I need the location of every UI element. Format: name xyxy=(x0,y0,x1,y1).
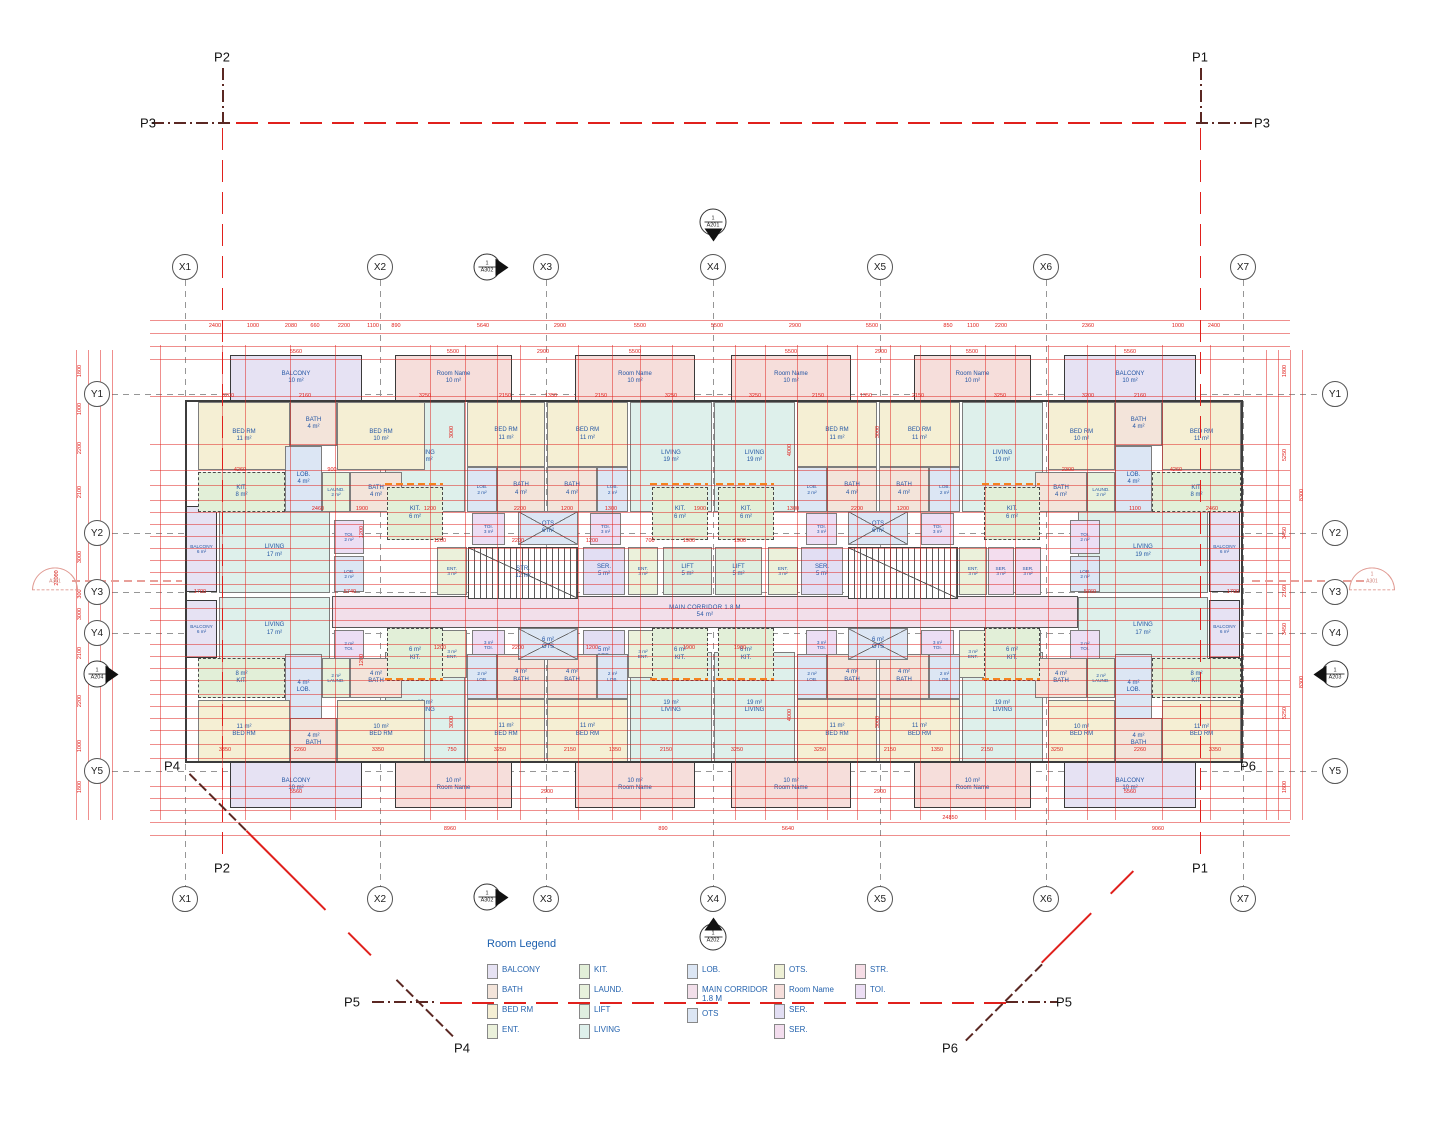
dim-line xyxy=(152,122,234,124)
dim-label: 2160 xyxy=(1282,585,1288,597)
room-label: 4 m² xyxy=(308,424,320,432)
dim-label: 2460 xyxy=(312,506,324,512)
dim-label: 1200 xyxy=(434,538,446,544)
legend-swatch xyxy=(774,964,785,979)
dim-label: 5640 xyxy=(782,826,794,832)
room-label: 11 m² xyxy=(237,436,252,444)
dim-line xyxy=(150,744,1290,745)
dim-label: 2150 xyxy=(884,747,896,753)
dim-label: 2200 xyxy=(77,695,83,707)
dim-label: 1300 xyxy=(787,506,799,512)
dim-label: 2200 xyxy=(77,442,83,454)
dim-line xyxy=(465,345,466,820)
dim-line xyxy=(920,345,921,820)
room-label: BALCONY xyxy=(282,778,311,786)
dim-label: 2400 xyxy=(209,323,221,329)
room-label: 4 m² xyxy=(515,669,527,677)
dim-label: 890 xyxy=(658,826,667,832)
legend-label: LIVING xyxy=(594,1024,620,1034)
dim-label: 2200 xyxy=(512,538,524,544)
room-label: 6 m² xyxy=(542,637,554,645)
legend-item: SER. xyxy=(774,1004,834,1019)
dim-label: 1200 xyxy=(897,506,909,512)
room-balcony: BALCONY10 m² xyxy=(230,762,362,808)
marker-label: 1 xyxy=(1326,668,1344,675)
legend-label: LIFT xyxy=(594,1004,610,1014)
room-label: LIVING xyxy=(265,622,285,630)
dim-line xyxy=(578,345,579,820)
dim-line xyxy=(950,345,951,820)
dim-line xyxy=(672,345,673,820)
room-4-m: 4 m²BATH xyxy=(1035,658,1087,698)
dim-label: 1200 xyxy=(586,645,598,651)
legend-swatch xyxy=(487,964,498,979)
room-label: 6 m² xyxy=(1220,629,1229,634)
dim-label: 1800 xyxy=(1282,365,1288,377)
legend-swatch xyxy=(774,1024,785,1039)
marker-label: A204 xyxy=(88,675,106,681)
dim-label: 4260 xyxy=(1170,467,1182,473)
room-str: STR.12 m² xyxy=(468,547,578,599)
dim-line xyxy=(150,500,1290,501)
legend-swatch xyxy=(687,984,698,999)
room-4-m: 4 m²BATH xyxy=(547,654,597,699)
room-label: BED RM xyxy=(576,427,599,435)
dim-line xyxy=(150,718,1290,719)
room-label: 4 m² xyxy=(1133,424,1145,432)
legend-item: LOB. xyxy=(687,964,768,979)
marker-label: A302 xyxy=(478,268,496,274)
room-label: 4 m² xyxy=(566,669,578,677)
room-label: 17 m² xyxy=(267,630,282,638)
dim-label: 3350 xyxy=(219,747,231,753)
section-arrow-icon xyxy=(704,918,722,931)
legend-item: LAUND. xyxy=(579,984,623,999)
dim-label: 3000 xyxy=(875,426,881,438)
p-marker-p5: P5 xyxy=(344,995,360,1010)
room-bath: BATH4 m² xyxy=(1035,472,1087,512)
p-marker-p4: P4 xyxy=(164,759,180,774)
dim-line xyxy=(150,706,1290,707)
dim-label: 2150 xyxy=(912,393,924,399)
room-room-name: Room Name10 m² xyxy=(914,355,1031,401)
dim-line xyxy=(150,333,1290,334)
section-marker-a203: 1A203 xyxy=(1322,661,1349,688)
dim-label: 1100 xyxy=(967,323,979,329)
legend-label: OTS xyxy=(702,1008,718,1018)
grid-line xyxy=(380,280,381,898)
grid-line xyxy=(1243,280,1244,898)
dim-label: 1900 xyxy=(734,645,746,651)
legend-item: LIVING xyxy=(579,1024,623,1039)
room-label: 2 m² xyxy=(344,574,353,579)
dim-label: 1000 xyxy=(77,740,83,752)
marker-label: A302 xyxy=(478,898,496,904)
grid-bubble-x4: X4 xyxy=(700,254,726,280)
room-4-m: 4 m²BATH xyxy=(1115,718,1162,762)
room-label: 4 m² xyxy=(898,490,910,498)
room-lob: LOB.2 m² xyxy=(334,556,364,592)
dim-line xyxy=(160,345,161,820)
dim-label: 5250 xyxy=(1282,449,1288,461)
legend-swatch xyxy=(487,984,498,999)
dim-label: 2300 xyxy=(1062,467,1074,473)
dim-label: 700 xyxy=(645,538,654,544)
dim-label: 8960 xyxy=(444,826,456,832)
room-room-name: Room Name10 m² xyxy=(395,355,512,401)
room-label: LIVING xyxy=(661,450,681,458)
dim-label: 3250 xyxy=(1051,747,1063,753)
room-8-m: 8 m²KIT. xyxy=(198,658,285,698)
dim-label: 1800 xyxy=(77,781,83,793)
marker-label: 1 xyxy=(88,668,106,675)
room-label: OTS xyxy=(872,644,884,652)
grid-bubble-x7: X7 xyxy=(1230,886,1256,912)
p-marker-p4: P4 xyxy=(454,1041,470,1056)
dim-line xyxy=(246,830,327,911)
legend-label: ENT. xyxy=(502,1024,519,1034)
section-marker-a201: 1A201 xyxy=(700,209,727,236)
room-label: LIVING xyxy=(1133,622,1153,630)
room-label: 6 m² xyxy=(674,514,686,522)
dim-line xyxy=(716,483,774,485)
dim-line xyxy=(1115,345,1116,820)
room-label: 6 m² xyxy=(872,637,884,645)
floor-plan: MAIN CORRIDOR 1.8 M54 m²LIVING19 m²LIVIN… xyxy=(0,0,1433,1128)
legend-item: SER. xyxy=(774,1024,834,1039)
dim-line xyxy=(650,483,708,485)
grid-bubble-x1: X1 xyxy=(172,254,198,280)
dim-line xyxy=(150,524,1290,525)
room-8-m: 8 m²KIT. xyxy=(1152,658,1241,698)
room-label: LIFT xyxy=(681,564,693,572)
dim-line xyxy=(1196,122,1256,124)
room-label: 6 m² xyxy=(740,514,752,522)
legend-label: LOB. xyxy=(702,964,720,974)
room-kit: KIT.6 m² xyxy=(387,487,443,540)
dim-line xyxy=(222,68,224,126)
room-ent: ENT.3 m² xyxy=(628,547,658,595)
dim-label: 2200 xyxy=(514,506,526,512)
room-bath: BATH4 m² xyxy=(1115,402,1162,446)
room-label: 3 m² xyxy=(484,529,493,534)
dim-label: 1300 xyxy=(605,506,617,512)
dim-label: 3000 xyxy=(77,551,83,563)
dim-label: 1900 xyxy=(683,538,695,544)
dim-label: 3350 xyxy=(372,747,384,753)
dim-label: 1000 xyxy=(77,403,83,415)
grid-bubble-x3: X3 xyxy=(533,254,559,280)
dim-line xyxy=(1006,1001,1058,1003)
room-label: 2 m² xyxy=(807,490,816,495)
dim-line xyxy=(1266,350,1267,820)
room-label: LIVING xyxy=(993,707,1013,715)
legend-column: OTS.Room NameSER.SER. xyxy=(774,964,834,1044)
legend-label: Room Name xyxy=(789,984,834,994)
dim-label: 1200 xyxy=(586,538,598,544)
dim-line xyxy=(150,608,1290,609)
dim-line xyxy=(150,536,1290,537)
room-label: BATH xyxy=(306,417,322,425)
room-kit: KIT.8 m² xyxy=(1152,472,1241,512)
room-10-m: 10 m²Room Name xyxy=(395,762,512,808)
legend-label: LAUND. xyxy=(594,984,623,994)
room-10-m: 10 m²Room Name xyxy=(575,762,695,808)
legend-swatch xyxy=(855,964,866,979)
p-marker-p3: P3 xyxy=(140,116,156,131)
legend-swatch xyxy=(855,984,866,999)
grid-bubble-y3: Y3 xyxy=(1322,579,1348,605)
dim-label: 2900 xyxy=(789,323,801,329)
dim-line xyxy=(150,584,1290,585)
dim-label: 2200 xyxy=(338,323,350,329)
room-label: 6 m² xyxy=(409,647,421,655)
dim-line xyxy=(150,730,1290,731)
legend-label: BED RM xyxy=(502,1004,533,1014)
room-label: 6 m² xyxy=(1006,647,1018,655)
room-label: BALCONY xyxy=(1116,371,1145,379)
legend-label: BATH xyxy=(502,984,523,994)
dim-label: 1900 xyxy=(734,538,746,544)
dim-label: 5500 xyxy=(629,349,641,355)
room-label: TOI. xyxy=(484,645,493,650)
dim-line xyxy=(716,678,774,680)
room-4-m: 4 m²LOB. xyxy=(1115,654,1152,720)
room-label: BED RM xyxy=(369,731,392,739)
dim-line xyxy=(112,350,113,820)
room-laund: LAUND.2 m² xyxy=(322,472,350,512)
dim-label: 3250 xyxy=(749,393,761,399)
elevation-marker-a301: 1A301 xyxy=(1349,567,1395,590)
room-ent: ENT.3 m² xyxy=(437,547,467,595)
room-label: 2 m² xyxy=(940,490,949,495)
dim-label: 1200 xyxy=(359,526,365,538)
legend-item: MAIN CORRIDOR1.8 M xyxy=(687,984,768,1003)
dim-line xyxy=(348,932,372,956)
room-label: 6 m² xyxy=(872,528,884,536)
dim-label: 3200 xyxy=(1082,393,1094,399)
grid-bubble-y2: Y2 xyxy=(1322,520,1348,546)
room-label: 4 m² xyxy=(1133,733,1145,741)
dim-label: 1200 xyxy=(359,654,365,666)
dim-label: 5560 xyxy=(1124,789,1136,795)
section-arrow-icon xyxy=(496,888,509,906)
dim-label: 5560 xyxy=(1124,349,1136,355)
dim-label: 2900 xyxy=(537,349,549,355)
room-ser: SER.3 m² xyxy=(988,547,1014,595)
section-marker-a204: 1A204 xyxy=(84,661,111,688)
dim-label: 1350 xyxy=(609,747,621,753)
room-lift: LIFT5 m² xyxy=(715,547,762,595)
dim-label: 750 xyxy=(447,747,456,753)
dim-line xyxy=(1087,345,1088,820)
legend-swatch xyxy=(687,1008,698,1023)
room-lift: LIFT5 m² xyxy=(663,547,712,595)
dim-label: 300 xyxy=(77,589,83,598)
dim-line xyxy=(1048,345,1049,820)
legend-title: Room Legend xyxy=(487,938,917,950)
dim-line xyxy=(797,345,798,820)
room-lob: LOB.2 m² xyxy=(1070,556,1100,592)
room-2-m: 2 m²LAUND. xyxy=(1087,658,1115,698)
dim-label: 1350 xyxy=(545,393,557,399)
room-kit: KIT.8 m² xyxy=(198,472,285,512)
dim-label: 8300 xyxy=(1299,676,1305,688)
dim-line xyxy=(290,345,291,820)
room-bed-rm: BED RM10 m² xyxy=(1048,402,1115,470)
room-living: LIVING17 m² xyxy=(219,597,330,662)
room-label: 10 m² xyxy=(1122,378,1137,386)
dim-line xyxy=(765,345,766,820)
room-label: BED RM xyxy=(232,731,255,739)
room-laund: LAUND.2 m² xyxy=(1087,472,1115,512)
legend-item: TOI. xyxy=(855,984,888,999)
grid-bubble-y4: Y4 xyxy=(1322,620,1348,646)
dim-label: 4000 xyxy=(787,709,793,721)
room-label: BED RM xyxy=(825,427,848,435)
dim-line xyxy=(150,798,1290,799)
dim-label: 5500 xyxy=(447,349,459,355)
dim-line xyxy=(150,680,1290,681)
dim-line xyxy=(150,359,1290,360)
dim-label: 2900 xyxy=(541,789,553,795)
room-balcony: BALCONY6 m² xyxy=(1209,506,1240,592)
room-label: 6 m² xyxy=(409,514,421,522)
legend-swatch xyxy=(579,1004,590,1019)
dim-line xyxy=(150,512,1290,513)
room-lob: LOB.2 m² xyxy=(929,467,960,512)
dim-label: 2260 xyxy=(294,747,306,753)
dim-label: 1200 xyxy=(434,645,446,651)
dim-label: 2080 xyxy=(285,323,297,329)
room-6-m: 6 m²KIT. xyxy=(387,628,443,681)
section-arrow-icon xyxy=(106,665,119,683)
room-bath: BATH4 m² xyxy=(290,402,337,446)
room-4-m: 4 m²BATH xyxy=(879,654,929,699)
dim-line xyxy=(385,678,443,680)
legend-column: STR.TOI. xyxy=(855,964,888,1004)
room-label: TOI. xyxy=(1080,646,1089,651)
dim-line xyxy=(385,483,443,485)
legend-item: BATH xyxy=(487,984,540,999)
legend-swatch xyxy=(487,1024,498,1039)
room-label: 54 m² xyxy=(697,612,714,620)
dim-label: 4000 xyxy=(787,444,793,456)
legend-label: OTS. xyxy=(789,964,808,974)
room-label: LIVING xyxy=(993,450,1013,458)
grid-bubble-y1: Y1 xyxy=(1322,381,1348,407)
grid-bubble-y4: Y4 xyxy=(84,620,110,646)
dim-label: 1350 xyxy=(931,747,943,753)
dim-line xyxy=(150,470,1290,471)
room-kit: KIT.6 m² xyxy=(984,487,1040,540)
room-2-m: 2 m²LAUND. xyxy=(322,658,350,698)
room-label: BED RM xyxy=(1070,731,1093,739)
dim-line xyxy=(150,835,1290,836)
room-label: OTS xyxy=(542,644,554,652)
dim-line xyxy=(1162,345,1163,820)
grid-bubble-x7: X7 xyxy=(1230,254,1256,280)
legend-item: BED RM xyxy=(487,1004,540,1019)
dim-label: 2150 xyxy=(660,747,672,753)
dim-line xyxy=(150,572,1290,573)
room-label: BALCONY xyxy=(1116,778,1145,786)
dim-label: 3450 xyxy=(1282,623,1288,635)
dim-label: 3450 xyxy=(1282,527,1288,539)
room-living: LIVING17 m² xyxy=(219,510,330,593)
dim-line xyxy=(1041,913,1092,964)
dim-line xyxy=(150,694,1290,695)
room-11-m: 11 m²BED RM xyxy=(1162,700,1241,762)
dim-label: 1700 xyxy=(1227,589,1239,595)
room-label: 10 m² xyxy=(373,436,388,444)
dim-label: 1350 xyxy=(860,393,872,399)
room-label: 6 m² xyxy=(542,528,554,536)
dim-line xyxy=(1278,350,1279,820)
room-2-m: 2 m²LOB. xyxy=(929,654,960,699)
room-label: LIVING xyxy=(661,707,681,715)
legend-item: Room Name xyxy=(774,984,834,999)
legend-label: SER. xyxy=(789,1024,808,1034)
dim-line xyxy=(150,644,1290,645)
dim-label: 5760 xyxy=(1084,589,1096,595)
room-ser: SER.3 m² xyxy=(1015,547,1041,595)
dim-label: 5500 xyxy=(711,323,723,329)
room-label: 4 m² xyxy=(566,490,578,498)
dim-line xyxy=(430,345,431,820)
room-label: TOI. xyxy=(933,645,942,650)
grid-bubble-y3: Y3 xyxy=(84,579,110,605)
grid-bubble-x3: X3 xyxy=(533,886,559,912)
room-lob: LOB.2 m² xyxy=(797,467,827,512)
dim-line xyxy=(150,786,1290,787)
dim-line xyxy=(150,444,1290,445)
p-marker-p1: P1 xyxy=(1192,861,1208,876)
dim-line xyxy=(150,396,1290,397)
room-label: 19 m² xyxy=(747,457,762,465)
dim-label: 4260 xyxy=(234,467,246,473)
room-bed-rm: BED RM11 m² xyxy=(467,402,545,467)
dim-label: 2200 xyxy=(512,645,524,651)
room-label: 10 m² xyxy=(446,378,461,386)
p-marker-p3: P3 xyxy=(1254,116,1270,131)
room-label: LIVING xyxy=(745,707,765,715)
room-balcony: BALCONY10 m² xyxy=(230,355,362,401)
dim-label: 850 xyxy=(943,323,952,329)
dim-line xyxy=(1252,580,1364,582)
legend-label: BALCONY xyxy=(502,964,540,974)
legend-swatch xyxy=(579,1024,590,1039)
room-toi: TOI.3 m² xyxy=(806,513,837,545)
room-label: 17 m² xyxy=(267,552,282,560)
dim-line xyxy=(827,345,828,820)
room-label: 19 m² xyxy=(663,457,678,465)
legend-item: BALCONY xyxy=(487,964,540,979)
room-ots: OTS6 m² xyxy=(518,511,578,545)
legend-item: STR. xyxy=(855,964,888,979)
dim-label: 5500 xyxy=(634,323,646,329)
room-label: 6 m² xyxy=(197,629,206,634)
dim-label: 5560 xyxy=(290,789,302,795)
room-label: 10 m² xyxy=(965,378,980,386)
dim-line xyxy=(245,345,246,820)
dim-label: 2100 xyxy=(77,647,83,659)
marker-label: 1 xyxy=(478,261,496,268)
dim-line xyxy=(650,678,708,680)
grid-bubble-y2: Y2 xyxy=(84,520,110,546)
room-ser: SER.5 m² xyxy=(801,547,843,595)
room-label: 11 m² xyxy=(830,435,845,443)
